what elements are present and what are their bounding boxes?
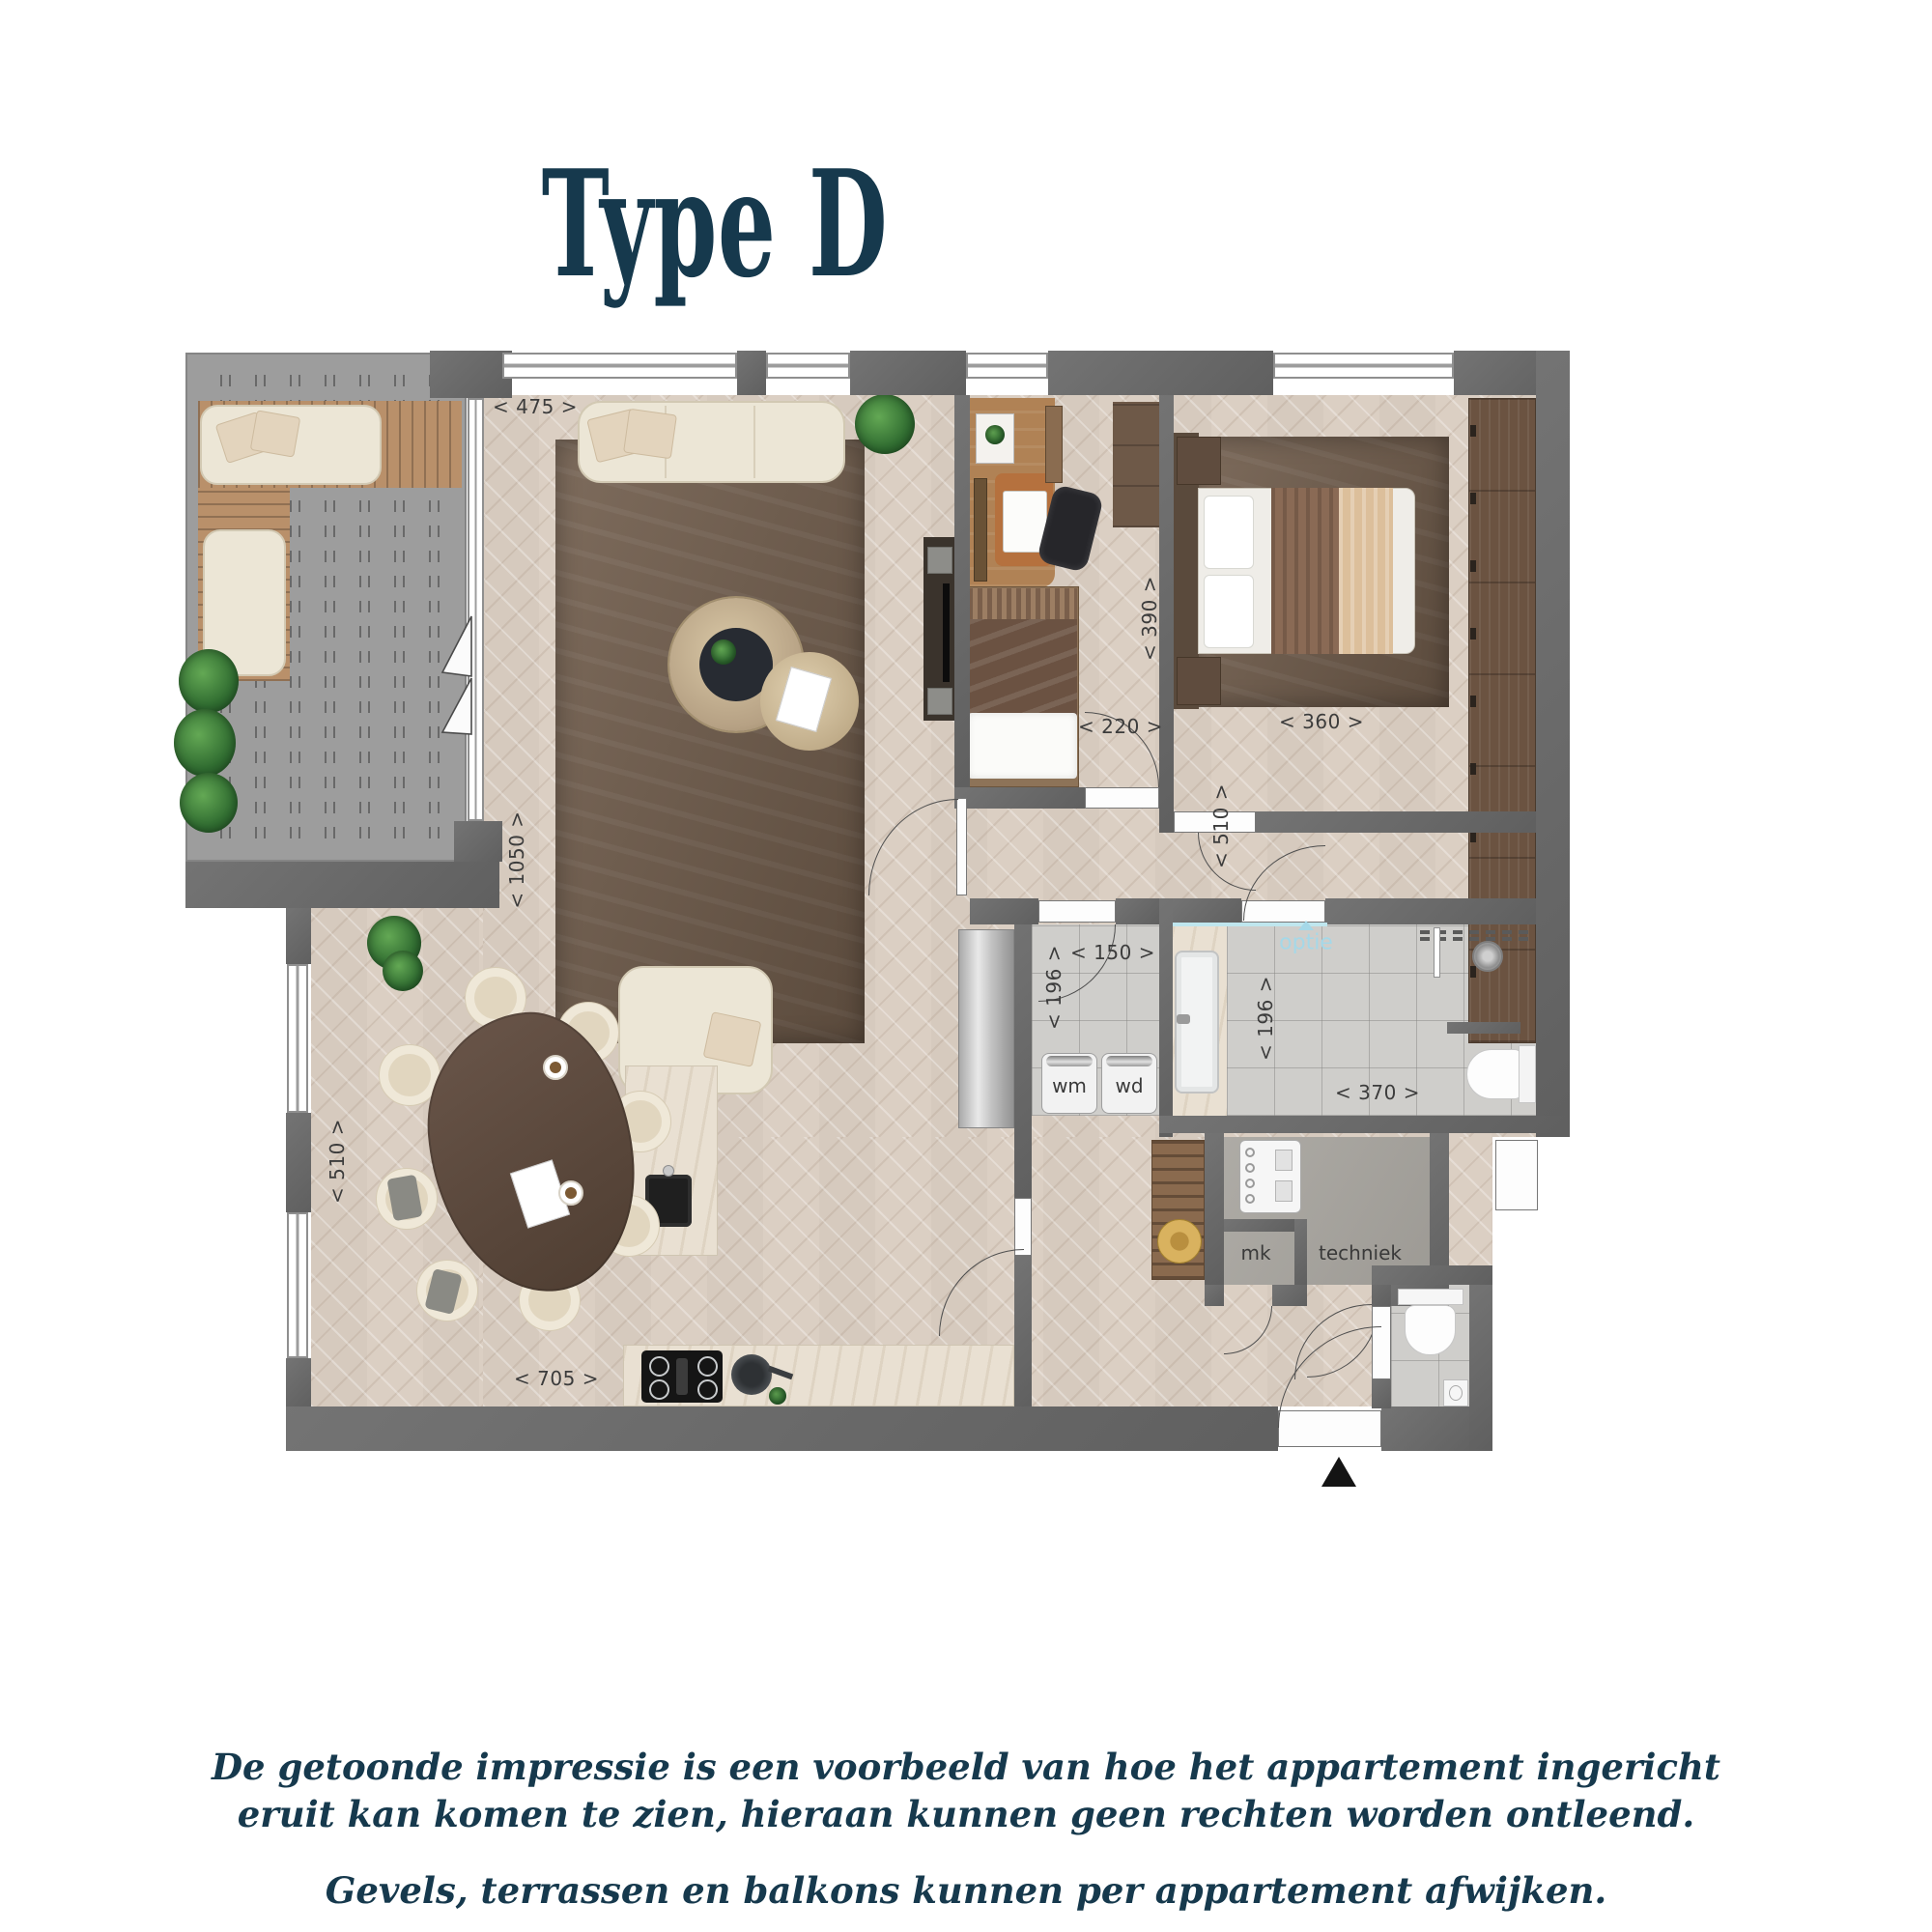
table-cup-coffee: [550, 1062, 561, 1073]
burner: [697, 1379, 718, 1400]
wall-closet: [1205, 1133, 1224, 1285]
cooktop-vent: [676, 1358, 688, 1395]
wall: [286, 1113, 311, 1212]
dim-kitchen-width: < 705 >: [514, 1367, 599, 1390]
boiler-dial: [1245, 1194, 1255, 1204]
wall-bath-top: [1173, 898, 1241, 924]
wall-study-bottom: [954, 787, 1085, 809]
window: [287, 964, 308, 1113]
label-optie: optie: [1279, 931, 1333, 955]
wall: [737, 351, 766, 395]
wall: [454, 821, 502, 862]
shower-glass: [1434, 927, 1440, 978]
door-study: [1085, 787, 1159, 809]
study-cabinet: [1113, 402, 1159, 527]
disclaimer: De getoonde impressie is een voorbeeld v…: [169, 1744, 1763, 1914]
wall: [286, 908, 311, 964]
wall-study-left: [954, 395, 970, 794]
single-bed-blanket: [968, 619, 1077, 716]
boiler-panel: [1275, 1150, 1293, 1171]
sofa-seam: [753, 406, 755, 478]
desk-plant: [985, 425, 1005, 444]
optie-arrow-icon: [1298, 921, 1314, 930]
burner: [697, 1356, 718, 1377]
dim-bedroom-width: < 360 >: [1279, 710, 1364, 733]
dim-study-width: < 220 >: [1078, 715, 1163, 738]
wall-toilet-right: [1469, 1285, 1492, 1449]
wall-bedroom-bottom: [1256, 811, 1536, 833]
boiler-panel: [1275, 1180, 1293, 1202]
dim-bath-width: < 370 >: [1335, 1081, 1420, 1104]
coffee-table-plant: [711, 639, 736, 665]
bed-throw: [1271, 488, 1339, 654]
wardrobe-handles: [1470, 415, 1476, 1034]
dim-bath-height: < 196 >: [1254, 976, 1277, 1061]
dim-bedroom-height: < 510 >: [1209, 783, 1233, 868]
single-bed-headboard: [968, 588, 1077, 619]
door-exterior: [1495, 1140, 1538, 1210]
wall-terrace-bottom: [185, 862, 499, 908]
window-terrace: [468, 398, 484, 821]
boiler-dial: [1245, 1179, 1255, 1188]
wall-laundry-top: [1116, 898, 1159, 924]
wall-mk-right: [1294, 1219, 1307, 1285]
dining-plant: [383, 951, 423, 991]
guest-toilet-cistern: [1398, 1289, 1463, 1305]
wall-laundry-bath: [1159, 898, 1173, 1137]
label-techniek: techniek: [1319, 1241, 1402, 1264]
wall-bottom: [286, 1406, 1278, 1451]
label-wm: wm: [1052, 1074, 1087, 1097]
terrace-plant: [180, 773, 238, 833]
boiler-dial: [1245, 1148, 1255, 1157]
window: [966, 353, 1048, 379]
machine-top: [1046, 1056, 1093, 1066]
pan: [731, 1354, 772, 1395]
wall: [430, 351, 512, 398]
wall-mk-top: [1224, 1219, 1294, 1232]
dim-laundry-height: < 196 >: [1042, 945, 1065, 1030]
dim-dining-height: < 510 >: [326, 1119, 349, 1204]
nightstand: [1177, 657, 1221, 705]
island-faucet: [663, 1165, 674, 1177]
living-plant: [855, 394, 915, 454]
nightstand: [1177, 437, 1221, 485]
floor-plan: < 475 > < 1050 > < 390 > < 220 > < 360 >…: [0, 0, 1932, 1932]
door-kitchen-hall: [1014, 1198, 1032, 1256]
machine-top: [1106, 1056, 1152, 1066]
label-wd: wd: [1115, 1074, 1143, 1097]
disclaimer-line-2: Gevels, terrassen en balkons kunnen per …: [169, 1867, 1763, 1915]
burner: [649, 1379, 669, 1400]
bed-pillow: [1204, 496, 1254, 569]
study-shelf: [1045, 406, 1063, 483]
table-cup-coffee: [565, 1187, 577, 1199]
cooktop: [641, 1350, 723, 1403]
wall-kitchen-hall: [1014, 898, 1032, 1198]
window: [1273, 353, 1454, 379]
guest-toilet-bowl: [1405, 1305, 1456, 1355]
terrace-plant: [179, 649, 239, 713]
disclaimer-line-1: De getoonde impressie is een voorbeeld v…: [169, 1744, 1763, 1838]
door-laundry: [1038, 900, 1116, 923]
desk-monitor: [974, 478, 987, 582]
tv-screen: [943, 583, 950, 682]
wall-techniek-bottom: [1205, 1285, 1224, 1306]
bed-blanket: [1339, 488, 1393, 654]
burner: [649, 1356, 669, 1377]
folding-door-icon: [435, 614, 473, 736]
hat: [1157, 1219, 1202, 1264]
loveseat-pillow: [703, 1011, 762, 1067]
toilet-cistern: [1519, 1045, 1536, 1103]
terrace-pillow: [250, 410, 301, 457]
terrace-plant: [174, 709, 236, 777]
bath-partition: [1447, 1022, 1520, 1034]
wall: [286, 1358, 311, 1408]
dim-laundry-width: < 150 >: [1070, 941, 1155, 964]
herbs: [769, 1387, 786, 1405]
tv-speaker: [927, 547, 952, 574]
wall-bath-bottom: [1159, 1116, 1570, 1133]
wall-study-bedroom: [1159, 395, 1174, 833]
window: [287, 1212, 308, 1358]
dim-living-width: < 475 >: [493, 395, 578, 418]
wall-right: [1536, 351, 1570, 1137]
boiler-dial: [1245, 1163, 1255, 1173]
fridge-cabinet: [958, 929, 1014, 1128]
bath-faucet: [1177, 1014, 1190, 1024]
entrance-arrow-icon: [1321, 1457, 1356, 1487]
wall-laundry-top: [970, 898, 1038, 924]
dim-living-height: < 1050 >: [505, 810, 528, 908]
single-bed-duvet: [968, 713, 1077, 779]
window: [766, 353, 850, 379]
label-mk: mk: [1240, 1241, 1270, 1264]
wall-techniek-bottom: [1272, 1285, 1307, 1306]
bed-pillow: [1204, 575, 1254, 648]
sofa-pillow: [623, 409, 677, 460]
wall-toilet-top: [1372, 1265, 1492, 1285]
tv-speaker: [927, 688, 952, 715]
guest-sink-basin: [1449, 1385, 1463, 1401]
wall: [1048, 351, 1273, 395]
toilet-bowl: [1466, 1049, 1522, 1099]
wall-bath-top: [1325, 898, 1536, 924]
dim-study-height: < 390 >: [1138, 576, 1161, 661]
window: [502, 353, 737, 379]
shower-head: [1472, 941, 1503, 972]
page: Type D: [0, 0, 1932, 1932]
wall: [850, 351, 966, 395]
